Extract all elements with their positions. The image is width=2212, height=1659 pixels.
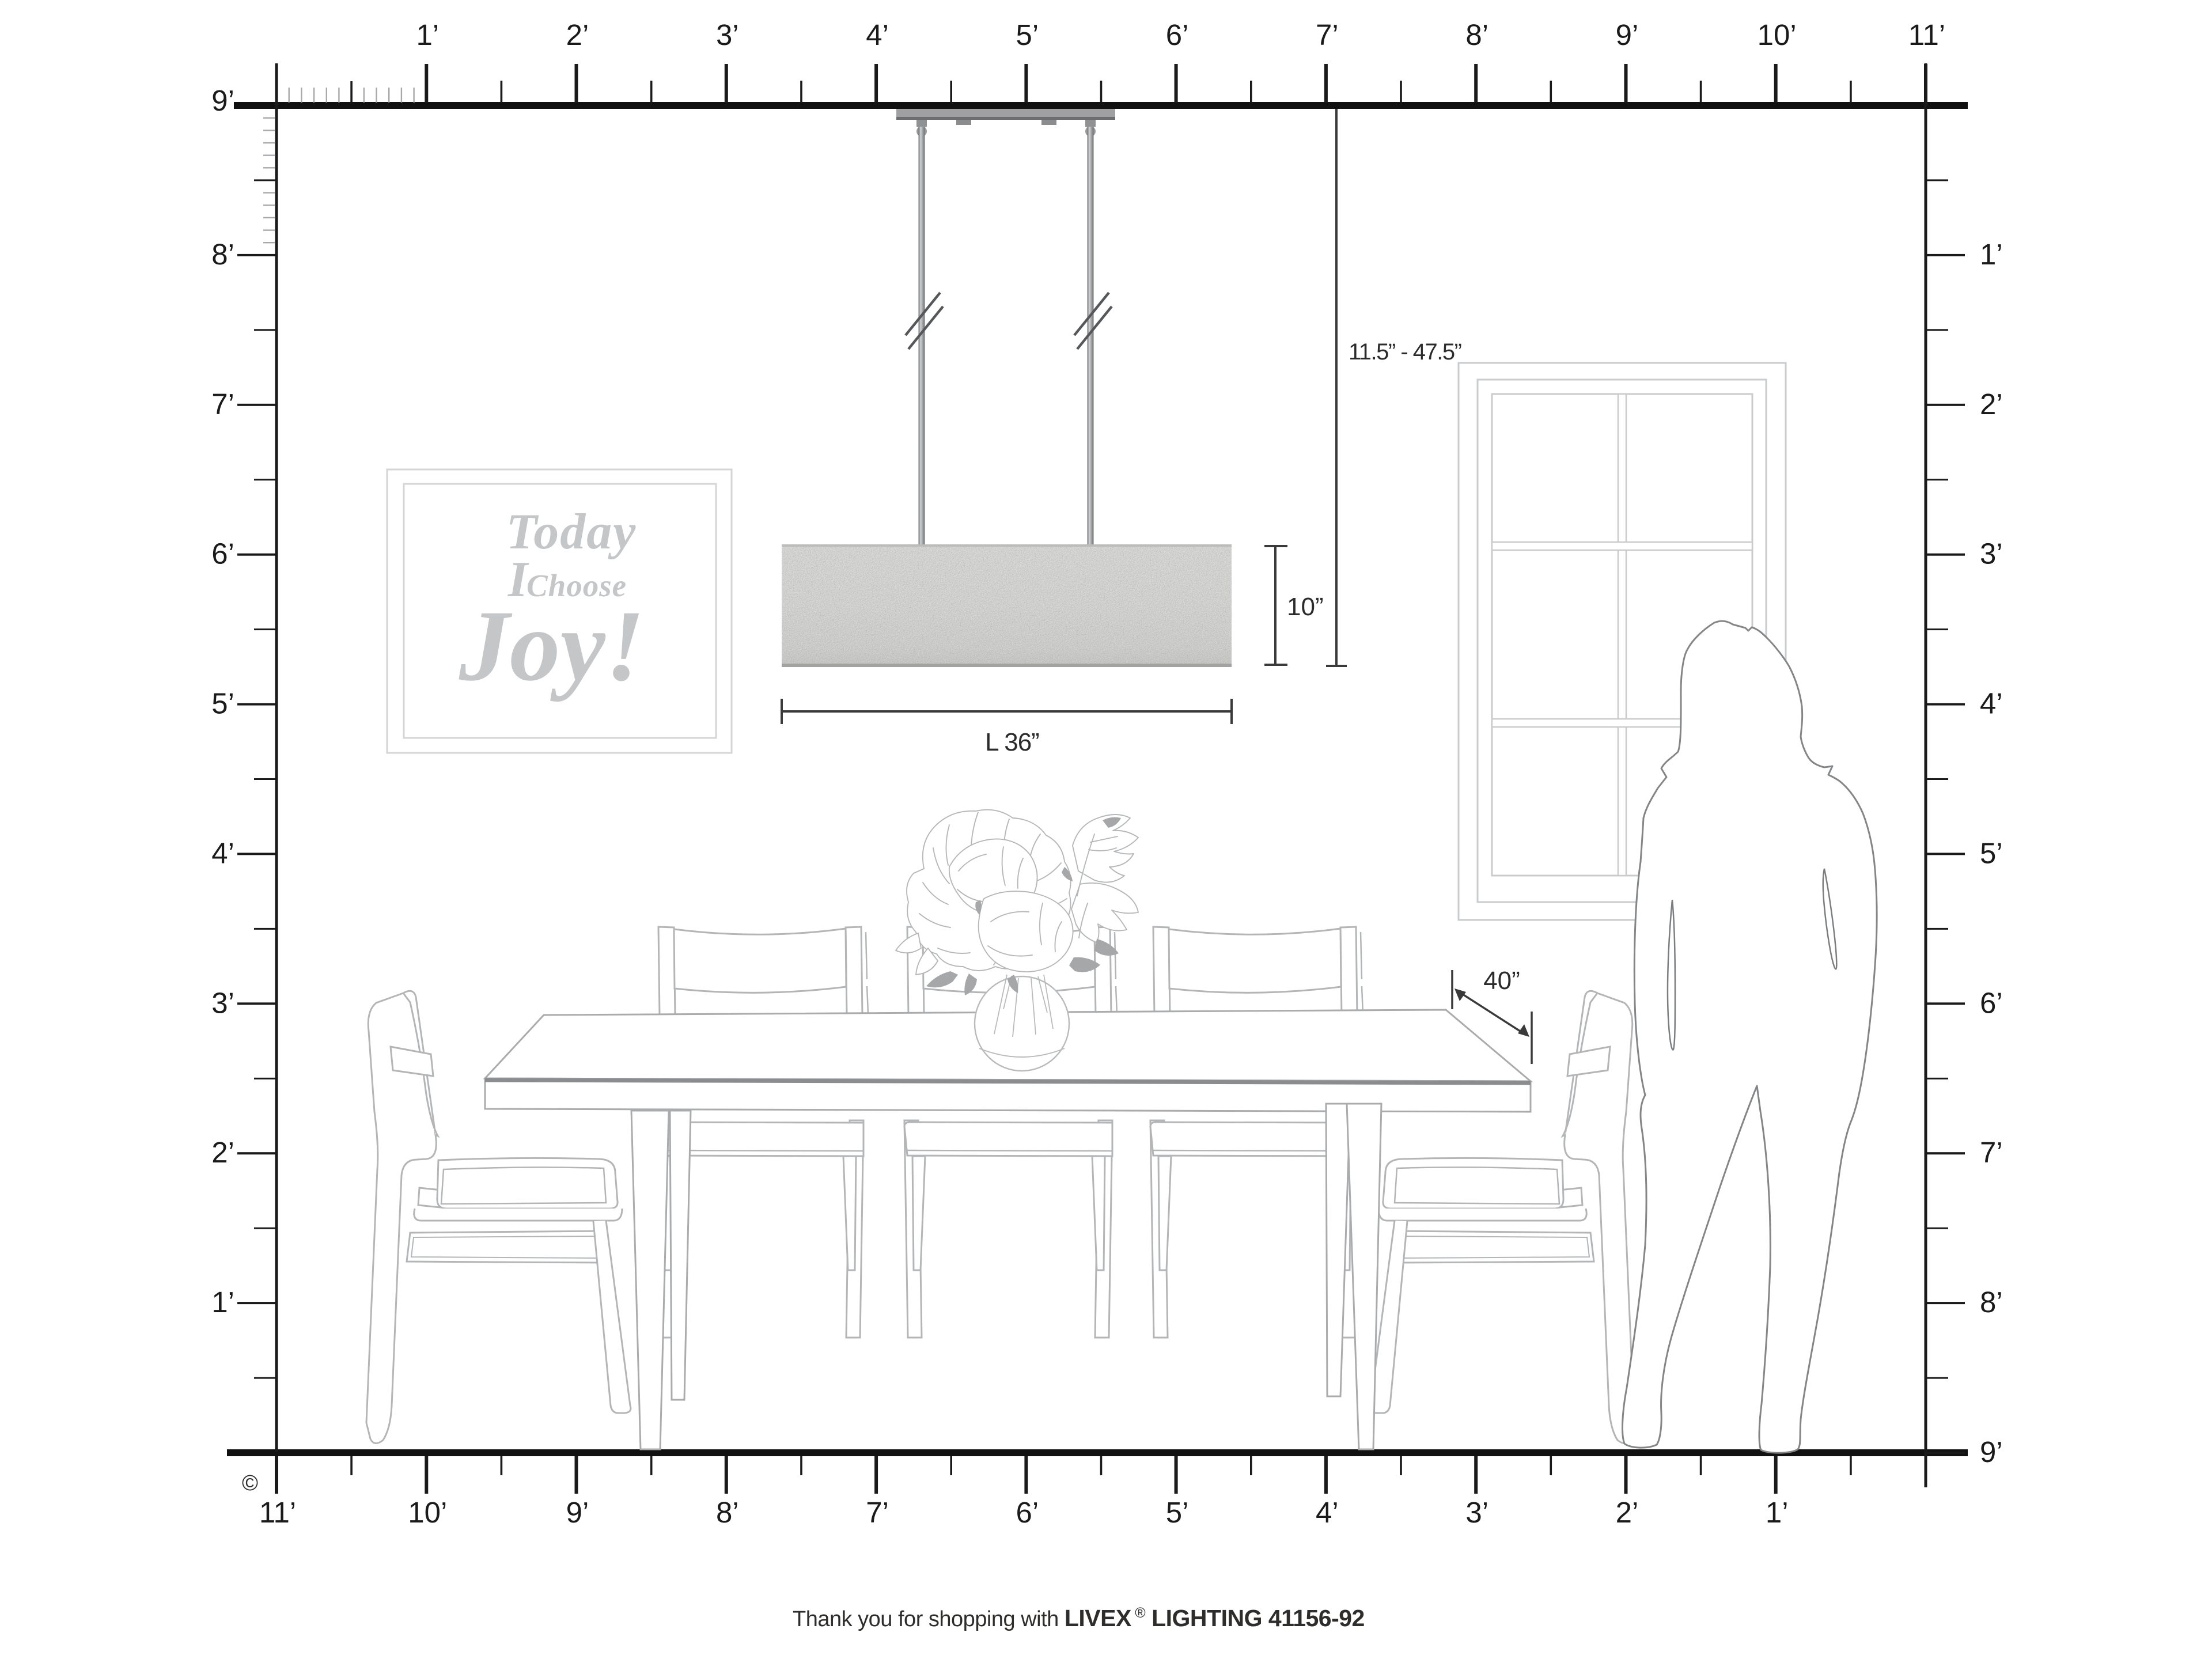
svg-text:10”: 10” [1287, 593, 1324, 621]
svg-text:3’: 3’ [716, 18, 739, 51]
svg-text:10’: 10’ [408, 1496, 447, 1529]
svg-text:7’: 7’ [1316, 18, 1339, 51]
svg-text:8’: 8’ [211, 238, 234, 271]
svg-text:4’: 4’ [1980, 687, 2003, 720]
svg-text:1’: 1’ [1766, 1496, 1789, 1529]
svg-text:2’: 2’ [566, 18, 589, 51]
svg-text:4’: 4’ [1316, 1496, 1339, 1529]
svg-text:2’: 2’ [211, 1136, 234, 1169]
svg-text:4’: 4’ [866, 18, 889, 51]
svg-text:1’: 1’ [416, 18, 439, 51]
svg-text:8’: 8’ [1980, 1286, 2003, 1319]
svg-text:L 36”: L 36” [985, 728, 1039, 756]
svg-text:5’: 5’ [1166, 1496, 1189, 1529]
svg-text:9’: 9’ [566, 1496, 589, 1529]
svg-text:9’: 9’ [211, 84, 234, 117]
svg-text:7’: 7’ [866, 1496, 889, 1529]
svg-text:40”: 40” [1483, 967, 1520, 995]
svg-text:Joy!: Joy! [459, 590, 645, 702]
svg-text:2’: 2’ [1616, 1496, 1639, 1529]
svg-text:7’: 7’ [211, 388, 234, 421]
svg-text:Thank you for shopping with LI: Thank you for shopping with LIVEX ® LIGH… [793, 1605, 1365, 1631]
svg-text:2’: 2’ [1980, 388, 2003, 421]
svg-text:3’: 3’ [1465, 1496, 1488, 1529]
svg-text:5’: 5’ [1980, 836, 2003, 869]
svg-text:9’: 9’ [1616, 18, 1639, 51]
svg-text:©: © [242, 1471, 258, 1495]
svg-text:6’: 6’ [1016, 1496, 1039, 1529]
svg-text:10’: 10’ [1758, 18, 1797, 51]
svg-text:5’: 5’ [1016, 18, 1039, 51]
svg-text:5’: 5’ [211, 687, 234, 720]
svg-text:9’: 9’ [1980, 1435, 2003, 1468]
svg-text:11’: 11’ [1908, 18, 1945, 51]
svg-text:1’: 1’ [211, 1286, 234, 1319]
svg-text:1’: 1’ [1980, 238, 2003, 271]
svg-text:6’: 6’ [211, 537, 234, 570]
svg-text:3’: 3’ [1980, 537, 2003, 570]
svg-text:4’: 4’ [211, 836, 234, 869]
svg-text:3’: 3’ [211, 986, 234, 1019]
svg-text:11’: 11’ [259, 1496, 296, 1529]
svg-text:8’: 8’ [1465, 18, 1488, 51]
svg-text:11.5” - 47.5”: 11.5” - 47.5” [1349, 339, 1461, 365]
svg-text:6’: 6’ [1166, 18, 1189, 51]
svg-text:8’: 8’ [716, 1496, 739, 1529]
svg-text:7’: 7’ [1980, 1136, 2003, 1169]
svg-text:6’: 6’ [1980, 986, 2003, 1019]
